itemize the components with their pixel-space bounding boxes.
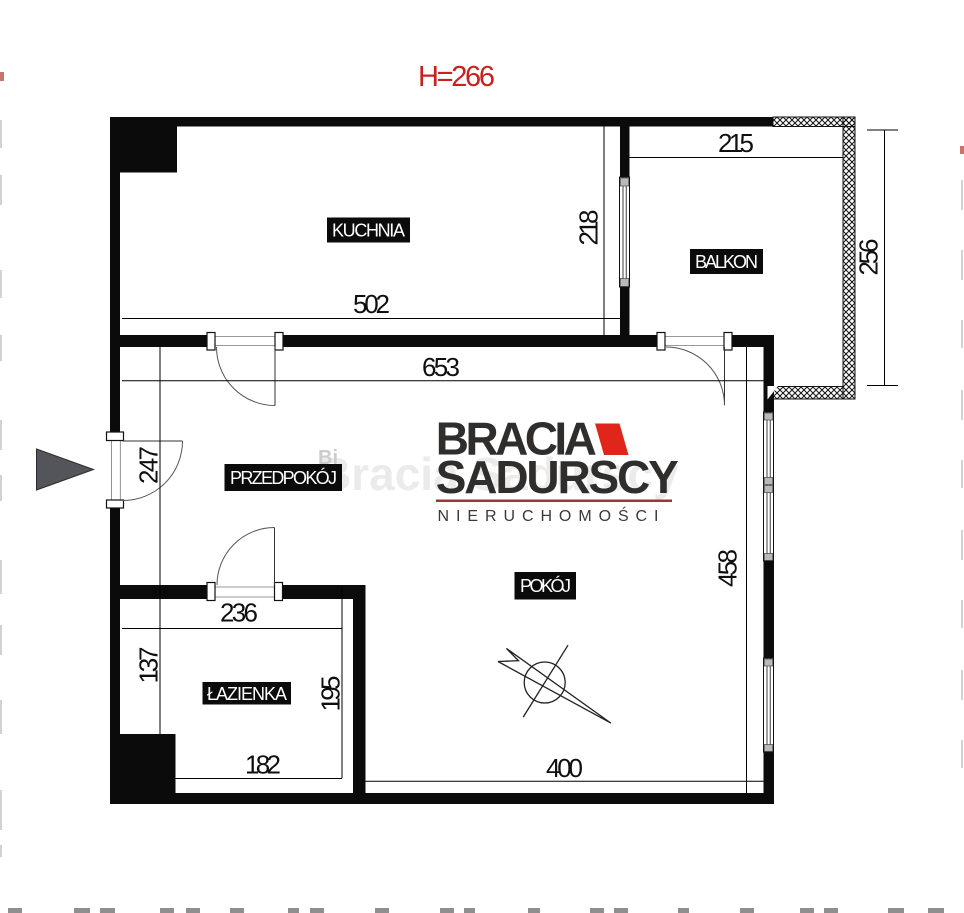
svg-text:POKÓJ: POKÓJ — [520, 575, 571, 596]
svg-text:502: 502 — [353, 289, 390, 319]
svg-text:236: 236 — [220, 598, 258, 628]
svg-text:247: 247 — [134, 446, 164, 484]
svg-text:458: 458 — [713, 549, 743, 587]
svg-text:400: 400 — [546, 753, 583, 783]
svg-text:H=266: H=266 — [418, 61, 495, 93]
svg-text:NIERUCHOMOŚCI: NIERUCHOMOŚCI — [438, 506, 666, 525]
svg-text:137: 137 — [134, 647, 164, 684]
svg-text:BALKON: BALKON — [695, 252, 758, 272]
svg-text:215: 215 — [718, 128, 754, 158]
svg-text:KUCHNIA: KUCHNIA — [332, 221, 405, 241]
svg-text:218: 218 — [574, 210, 604, 246]
svg-text:195: 195 — [316, 676, 346, 712]
svg-text:182: 182 — [245, 750, 281, 780]
svg-text:SADURSCY: SADURSCY — [436, 451, 679, 503]
svg-text:653: 653 — [422, 352, 460, 382]
svg-text:PRZEDPOKÓJ: PRZEDPOKÓJ — [230, 467, 337, 488]
svg-text:256: 256 — [854, 239, 884, 276]
svg-text:ŁAZIENKA: ŁAZIENKA — [207, 684, 287, 704]
